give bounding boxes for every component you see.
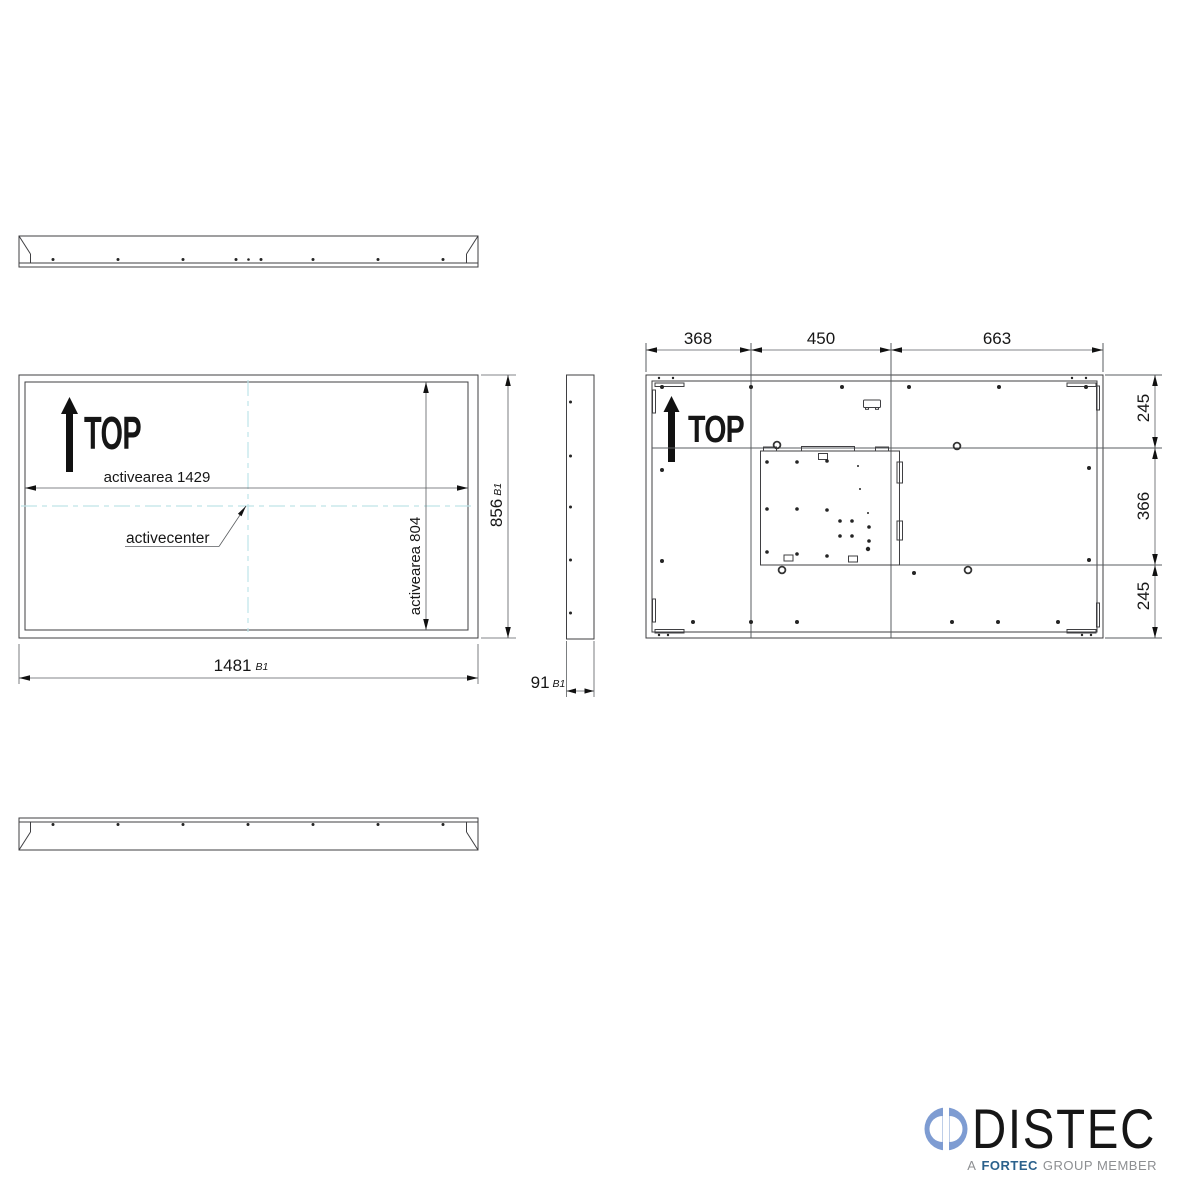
dim-245-top-label: 245 (1134, 394, 1153, 422)
dim-1481-label: 1481B1 (214, 656, 269, 675)
bottom-profile-holes (52, 823, 445, 826)
bottom-profile-view (19, 818, 478, 850)
drawing-page: TOP activearea 1429 activecenter activea… (0, 0, 1200, 1200)
dim-245-bottom-label: 245 (1134, 582, 1153, 610)
electronics-box (761, 447, 903, 566)
front-view: TOP activearea 1429 activecenter activea… (19, 375, 516, 684)
distec-logo-mark-icon (925, 1106, 968, 1153)
electronics-box-screws (765, 459, 871, 558)
dim-activearea-width-label: activearea 1429 (104, 469, 211, 486)
dim-663-label: 663 (983, 329, 1011, 348)
activecenter-callout: activecenter (125, 506, 246, 547)
side-view-holes (569, 401, 572, 615)
dim-rear-top-chain: 368 450 663 (646, 329, 1103, 353)
dim-91-label: 91B1 (531, 673, 566, 692)
dim-1481: 1481B1 (19, 644, 478, 684)
technical-drawing: TOP activearea 1429 activecenter activea… (0, 0, 1200, 1200)
dim-368-label: 368 (684, 329, 712, 348)
logo-tagline: AFORTECGROUP MEMBER (967, 1158, 1157, 1173)
dim-856: 856B1 (481, 375, 516, 638)
dim-366-label: 366 (1134, 492, 1153, 520)
side-view: 91B1 (531, 375, 594, 697)
brand-name: DISTEC (972, 1097, 1156, 1160)
toroid-mounts (774, 442, 972, 574)
front-orientation-label: TOP (84, 407, 141, 459)
distec-logo: DISTEC AFORTECGROUP MEMBER (925, 1097, 1158, 1173)
up-arrow-icon (61, 397, 78, 472)
rear-orientation-label: TOP (688, 409, 744, 451)
dim-rear-right-chain: 245 366 245 (1134, 375, 1158, 638)
rear-view: TOP (646, 329, 1162, 638)
rear-handle (864, 400, 881, 409)
dim-activearea-height-label: activearea 804 (407, 517, 424, 615)
dim-856-label: 856B1 (487, 483, 506, 527)
electronics-box-tabs (764, 447, 903, 563)
top-profile-view (19, 236, 478, 267)
top-profile-holes (52, 258, 445, 261)
activecenter-label: activecenter (126, 530, 210, 547)
dim-activearea-width: activearea 1429 (25, 469, 468, 491)
up-arrow-icon (664, 396, 680, 462)
dim-450-label: 450 (807, 329, 835, 348)
dim-91: 91B1 (531, 641, 594, 697)
